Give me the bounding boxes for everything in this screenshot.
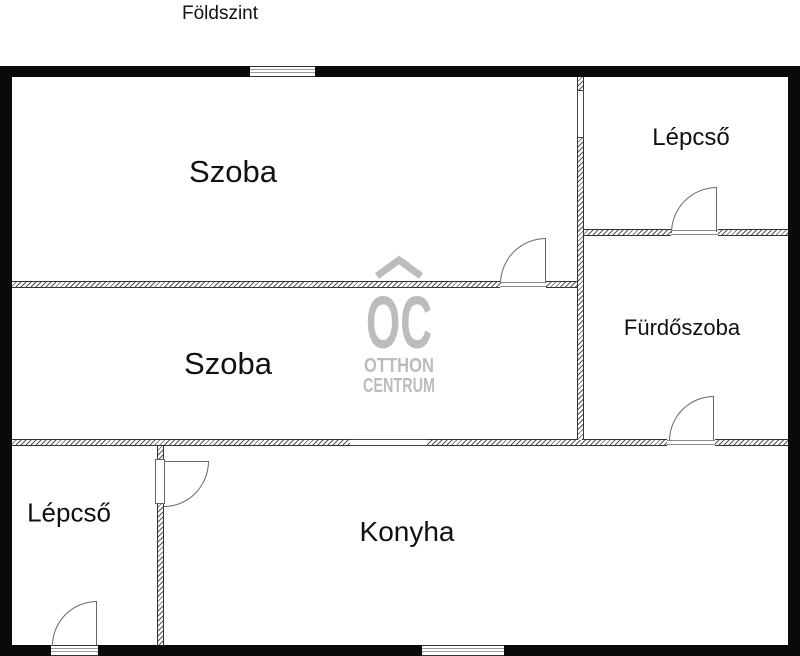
floor-title: Földszint bbox=[182, 3, 258, 25]
window-top-wall bbox=[250, 66, 315, 77]
door-swing-kitchen bbox=[164, 461, 209, 507]
outer-wall-bottom bbox=[0, 645, 800, 656]
room-label-kitchen: Konyha bbox=[360, 516, 455, 548]
door-leaf-stairs-top bbox=[716, 187, 717, 232]
wall-between-szoba-rooms bbox=[12, 281, 578, 288]
wall-kitchen-stairs-lower bbox=[157, 503, 164, 645]
watermark-initials: OC bbox=[366, 281, 432, 364]
watermark-line1: OTTHON bbox=[364, 355, 434, 377]
room-label-bathroom: Fürdőszoba bbox=[624, 315, 740, 341]
roof-icon bbox=[377, 260, 421, 276]
window-bottom-wall bbox=[422, 645, 504, 656]
room-label-stairs-top: Lépcső bbox=[652, 124, 729, 152]
door-swing-stairs-top bbox=[671, 187, 717, 233]
wall-right-vertical-upper bbox=[577, 77, 584, 90]
outer-wall-left bbox=[0, 66, 12, 656]
door-leaf-bathroom bbox=[713, 396, 714, 440]
entry-door-sill bbox=[51, 645, 98, 656]
room-label-szoba-2: Szoba bbox=[184, 346, 272, 382]
room-label-stairs-bottom: Lépcső bbox=[27, 498, 111, 529]
wall-right-vertical-lower bbox=[577, 138, 584, 440]
door-swing-bathroom bbox=[669, 396, 714, 441]
door-leaf-entry bbox=[96, 601, 97, 645]
outer-wall-top bbox=[0, 66, 800, 77]
opening-kitchen-wall bbox=[350, 439, 427, 446]
opening-right-vertical-wall bbox=[577, 90, 584, 138]
watermark-line2: CENTRUM bbox=[363, 375, 435, 397]
floor-plan: Földszint OC OTTHON CENTRUM Sz bbox=[0, 0, 800, 656]
room-label-szoba-1: Szoba bbox=[189, 154, 277, 190]
door-leaf-szoba bbox=[545, 238, 546, 283]
door-swing-szoba bbox=[500, 238, 546, 284]
otthon-centrum-watermark-logo: OC OTTHON CENTRUM bbox=[336, 252, 464, 402]
door-swing-entry bbox=[52, 601, 97, 646]
outer-wall-right bbox=[788, 66, 800, 656]
wall-kitchen-stairs-upper bbox=[157, 446, 164, 459]
